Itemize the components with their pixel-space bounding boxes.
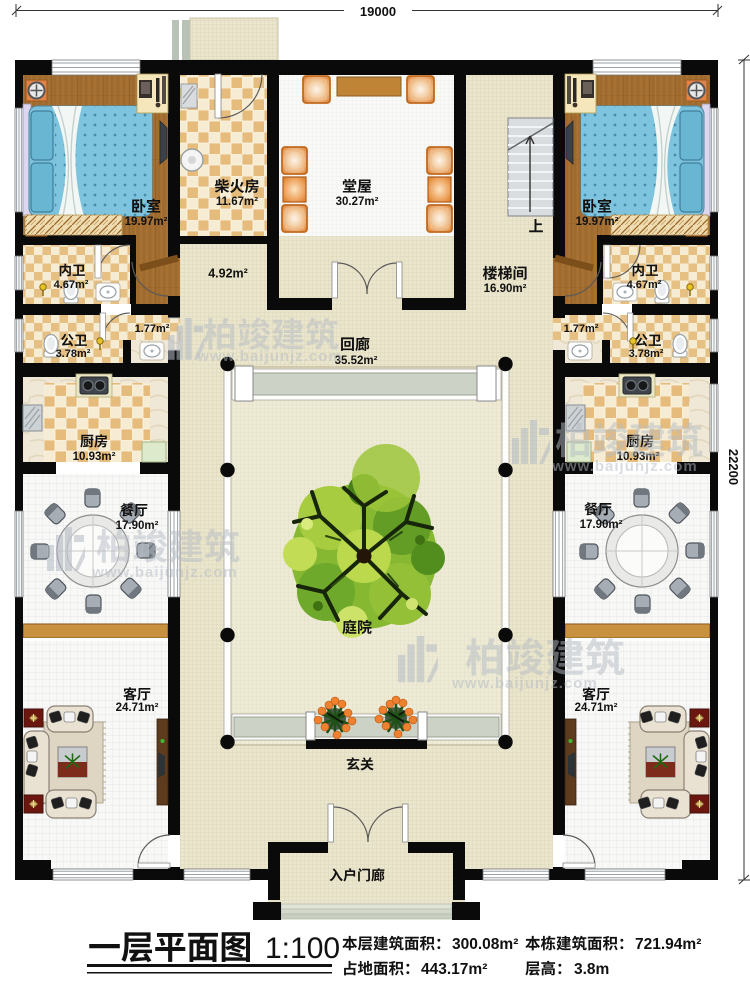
svg-text:3.8m: 3.8m: [574, 961, 609, 978]
svg-text:3.78m²: 3.78m²: [56, 348, 91, 360]
svg-text:19.97m²: 19.97m²: [576, 216, 619, 228]
svg-text:10.93m²: 10.93m²: [73, 451, 116, 463]
svg-text:19000: 19000: [360, 4, 396, 19]
svg-text:1.77m²: 1.77m²: [564, 323, 599, 335]
svg-text:19.97m²: 19.97m²: [125, 216, 168, 228]
svg-text:443.17m²: 443.17m²: [421, 961, 487, 978]
svg-text:4.67m²: 4.67m²: [54, 279, 89, 291]
svg-text:11.67m²: 11.67m²: [216, 196, 258, 208]
svg-text:4.67m²: 4.67m²: [627, 279, 662, 291]
svg-text:1:100: 1:100: [265, 932, 340, 965]
svg-text:17.90m²: 17.90m²: [580, 519, 623, 531]
svg-text:24.71m²: 24.71m²: [575, 702, 618, 714]
svg-text:www.baijunjz.com: www.baijunjz.com: [551, 458, 697, 475]
svg-text:30.27m²: 30.27m²: [336, 196, 379, 208]
svg-text:300.08m²: 300.08m²: [452, 936, 518, 953]
svg-text:16.90m²: 16.90m²: [484, 283, 527, 295]
svg-text:www.baijunjz.com: www.baijunjz.com: [451, 675, 597, 692]
svg-text:22200: 22200: [726, 449, 741, 485]
svg-text:721.94m²: 721.94m²: [635, 936, 701, 953]
svg-text:24.71m²: 24.71m²: [116, 702, 159, 714]
svg-text:www.baijunjz.com: www.baijunjz.com: [91, 564, 237, 581]
svg-text:www.baijunjz.com: www.baijunjz.com: [196, 348, 342, 365]
svg-text:4.92m²: 4.92m²: [208, 267, 248, 281]
svg-text:3.78m²: 3.78m²: [629, 348, 664, 360]
svg-text:1.77m²: 1.77m²: [135, 323, 170, 335]
